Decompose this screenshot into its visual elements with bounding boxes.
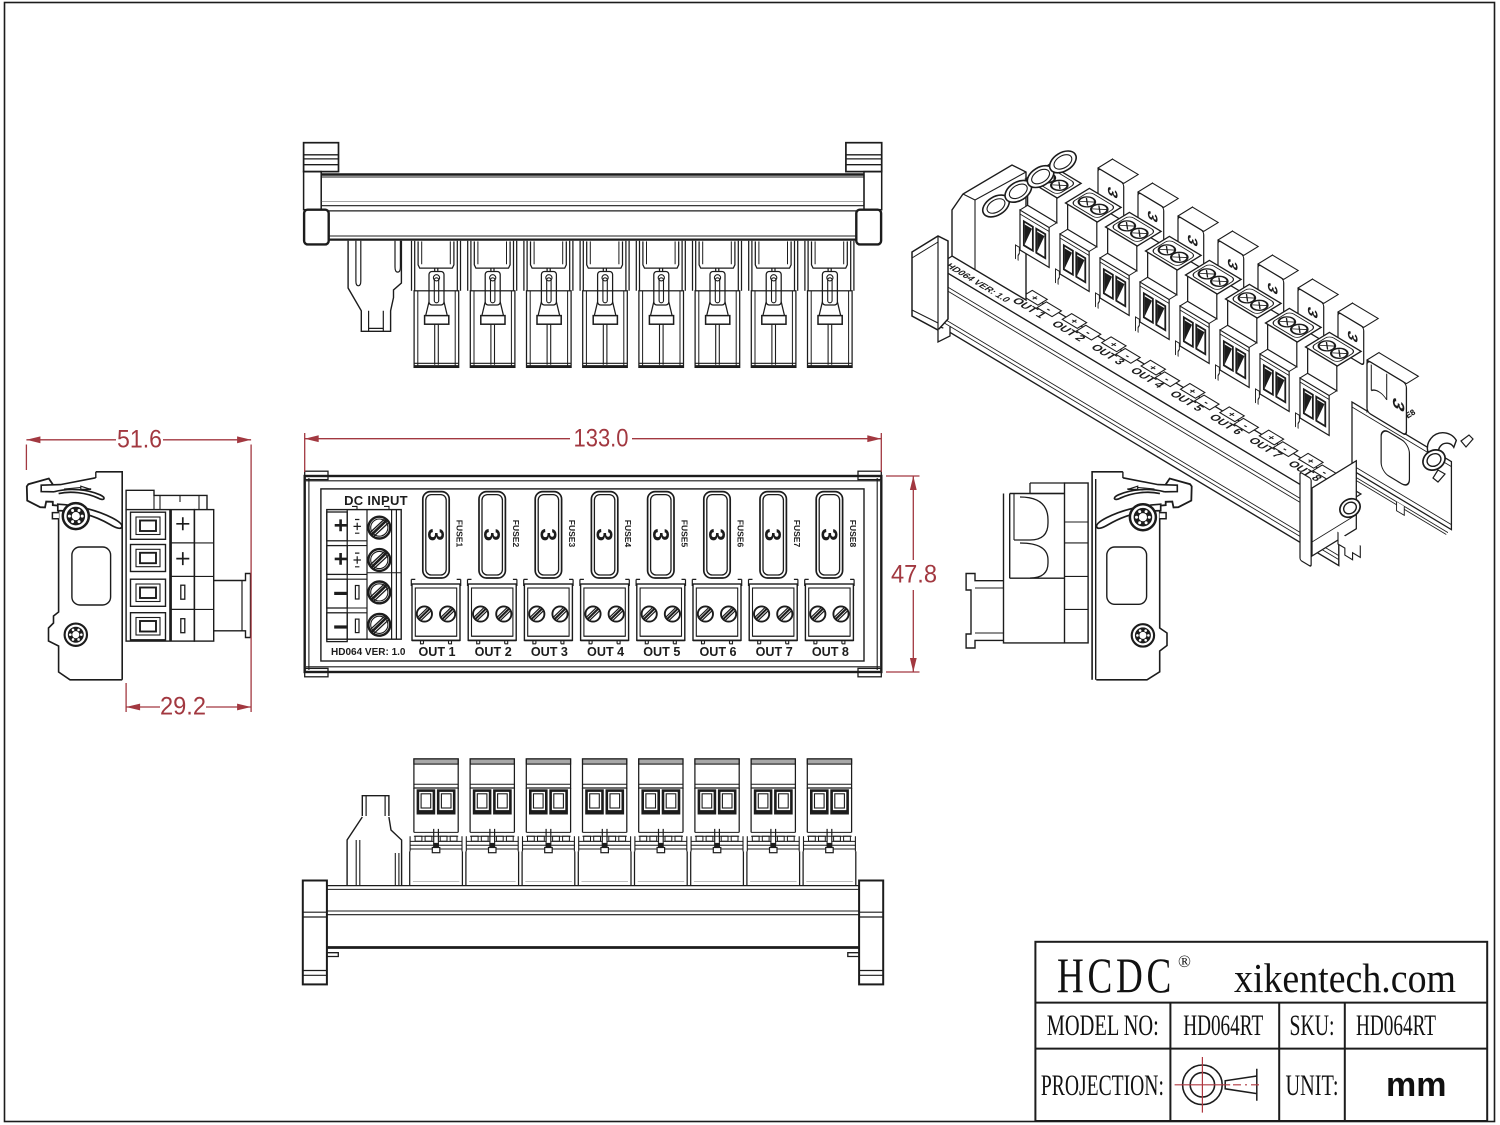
svg-text:FUSE5: FUSE5 xyxy=(679,520,689,548)
svg-text:FUSE1: FUSE1 xyxy=(455,520,465,548)
svg-text:xikentech.com: xikentech.com xyxy=(1234,955,1456,1001)
svg-text:3: 3 xyxy=(760,528,786,541)
svg-text:HD064RT: HD064RT xyxy=(1183,1009,1263,1042)
svg-text:3: 3 xyxy=(535,528,561,541)
svg-text:133.0: 133.0 xyxy=(574,425,629,453)
svg-text:FUSE6: FUSE6 xyxy=(736,520,746,548)
svg-text:HCDC: HCDC xyxy=(1057,947,1175,1003)
svg-text:OUT 2: OUT 2 xyxy=(475,645,512,659)
svg-text:3: 3 xyxy=(648,528,674,541)
svg-text:OUT 7: OUT 7 xyxy=(756,645,793,659)
svg-text:UNIT:: UNIT: xyxy=(1286,1069,1339,1102)
svg-text:MODEL NO:: MODEL NO: xyxy=(1047,1009,1159,1042)
svg-text:3: 3 xyxy=(479,528,505,541)
svg-text:FUSE4: FUSE4 xyxy=(623,520,633,548)
svg-text:3: 3 xyxy=(423,528,449,541)
svg-text:HD064RT: HD064RT xyxy=(1356,1009,1436,1042)
svg-text:29.2: 29.2 xyxy=(160,693,206,721)
svg-text:3: 3 xyxy=(816,528,842,541)
svg-text:51.6: 51.6 xyxy=(117,426,162,454)
svg-text:FUSE3: FUSE3 xyxy=(567,520,577,548)
svg-text:HD064 VER: 1.0: HD064 VER: 1.0 xyxy=(331,647,406,658)
svg-text:3: 3 xyxy=(704,528,730,541)
svg-text:PROJECTION:: PROJECTION: xyxy=(1041,1069,1164,1102)
svg-text:DC INPUT: DC INPUT xyxy=(344,493,408,508)
svg-text:47.8: 47.8 xyxy=(891,561,937,589)
svg-text:OUT 8: OUT 8 xyxy=(812,645,849,659)
svg-text:OUT 5: OUT 5 xyxy=(643,645,680,659)
svg-text:®: ® xyxy=(1178,952,1191,971)
svg-text:SKU:: SKU: xyxy=(1290,1009,1335,1042)
svg-text:OUT 6: OUT 6 xyxy=(699,645,736,659)
svg-text:OUT 3: OUT 3 xyxy=(531,645,568,659)
svg-text:OUT 1: OUT 1 xyxy=(418,645,455,659)
svg-text:3: 3 xyxy=(592,528,618,541)
svg-text:FUSE7: FUSE7 xyxy=(792,520,802,548)
svg-text:OUT 4: OUT 4 xyxy=(587,645,624,659)
svg-text:FUSE2: FUSE2 xyxy=(511,520,521,548)
svg-text:FUSE8: FUSE8 xyxy=(848,520,858,548)
svg-text:mm: mm xyxy=(1386,1066,1446,1104)
